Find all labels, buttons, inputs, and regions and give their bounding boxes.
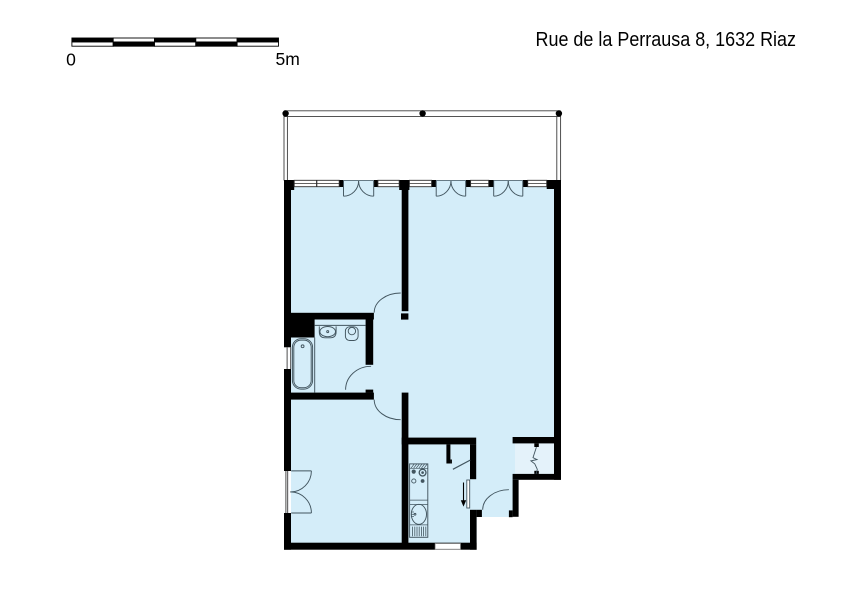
svg-text:5m: 5m bbox=[276, 49, 300, 69]
svg-text:0: 0 bbox=[66, 50, 76, 70]
svg-text:Rue de la Perrausa 8, 1632 Ria: Rue de la Perrausa 8, 1632 Riaz bbox=[536, 29, 797, 51]
